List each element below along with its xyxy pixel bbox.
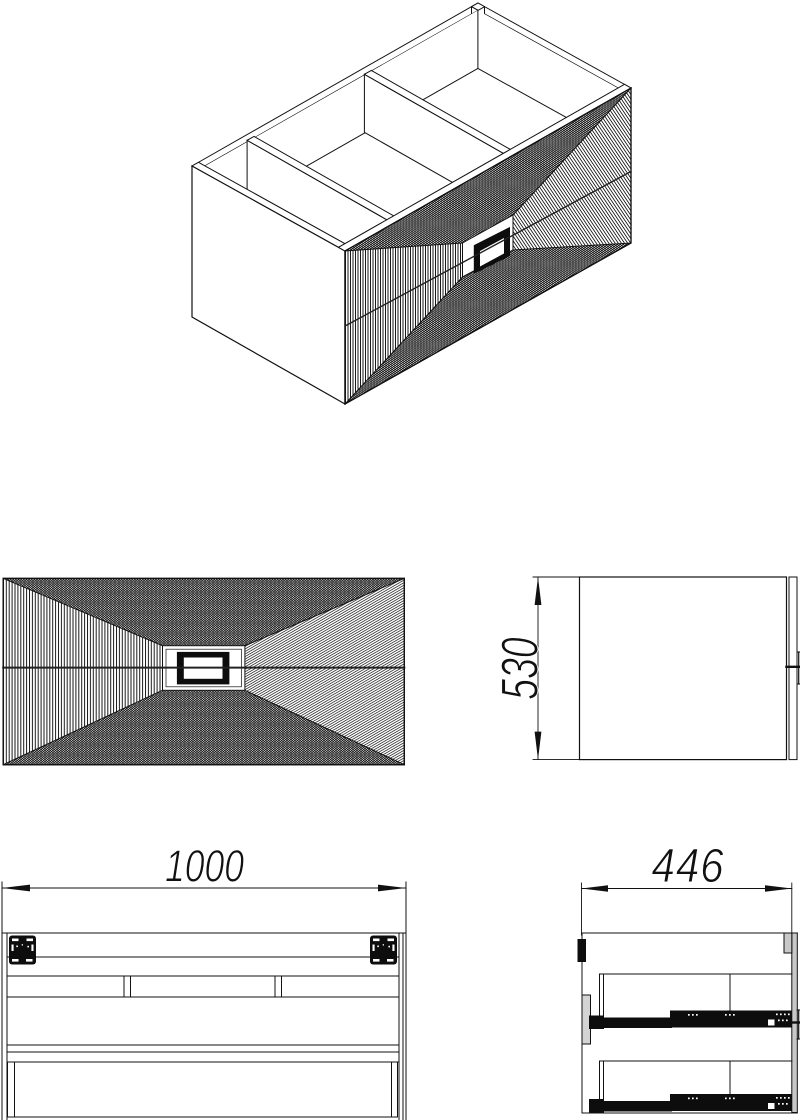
svg-text:446: 446 [651, 838, 724, 892]
svg-text:530: 530 [490, 637, 549, 699]
svg-text:1000: 1000 [165, 840, 244, 891]
